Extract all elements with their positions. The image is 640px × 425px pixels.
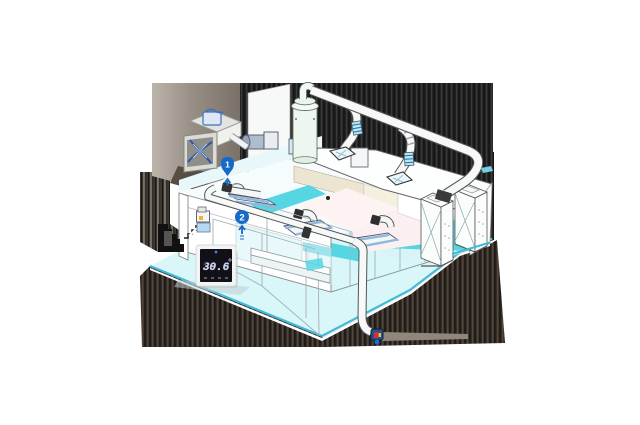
svg-text:2: 2 xyxy=(239,213,244,224)
svg-text:30.6: 30.6 xyxy=(203,262,230,274)
svg-text:1: 1 xyxy=(225,160,230,170)
